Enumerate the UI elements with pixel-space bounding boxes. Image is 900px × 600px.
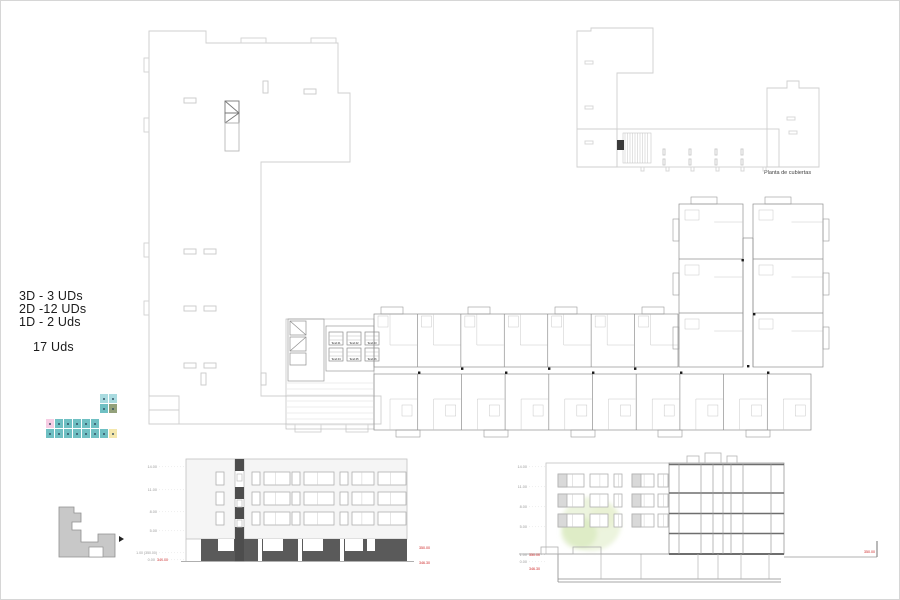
section-level-leaders <box>529 467 546 562</box>
window <box>216 492 224 505</box>
window <box>292 512 300 525</box>
window <box>292 492 300 505</box>
window <box>292 472 300 485</box>
unit-dot <box>94 423 96 425</box>
roof-drain-tick <box>741 167 744 171</box>
level-label: 5.00 <box>520 525 527 529</box>
tend-label: Tend.05 <box>349 357 359 361</box>
section-level-labels: 14.00 11.00 8.00 5.00 1.00 0.00 <box>517 465 527 564</box>
bathroom-hint <box>759 210 773 220</box>
vent-mark <box>204 306 216 311</box>
unit-dot <box>58 423 60 425</box>
roof-outline-bar <box>617 129 779 167</box>
vent-mark <box>184 98 196 103</box>
bathroom-hint <box>639 316 649 327</box>
key-plan-unit-teal <box>82 429 90 438</box>
unit-dot <box>112 408 114 410</box>
tend-area: Tend.01Tend.02Tend.03Tend.04Tend.05Tend.… <box>329 332 379 361</box>
tend-label: Tend.01 <box>331 341 341 345</box>
roof-drain-tick <box>716 167 719 171</box>
roof-column-mark <box>663 159 665 165</box>
bathroom-hint <box>795 405 805 416</box>
vent-mark <box>204 363 216 368</box>
roof-column-mark <box>715 149 717 155</box>
level-label: 14.00 <box>517 465 527 469</box>
unit-dot <box>76 423 78 425</box>
roof-mark <box>585 61 593 64</box>
bathroom-hint <box>577 405 587 416</box>
storefront-opening <box>263 539 283 551</box>
door-mark <box>634 368 636 370</box>
key-plan-unit-teal <box>55 419 63 428</box>
site-key-plan <box>59 507 124 557</box>
bathroom-hint <box>685 210 699 220</box>
level-label: 11.00 <box>518 485 527 489</box>
unit-dot <box>49 433 51 435</box>
wing-right-column <box>753 204 823 367</box>
key-plan-unit-yellow <box>109 429 117 438</box>
balcony <box>691 197 717 204</box>
unit-dot <box>85 423 87 425</box>
tower-dark-segment <box>235 527 244 539</box>
base-level-label: 1.00 (350.00) <box>136 551 157 555</box>
window-shutter <box>558 494 567 507</box>
elevation-level-labels: 14.00 11.00 8.00 5.00 1.00 (350.00) 0.00 <box>136 465 157 562</box>
section-low-wall <box>541 547 558 554</box>
balcony <box>555 307 577 314</box>
wing-left-column <box>679 204 743 367</box>
edge-tab <box>144 118 149 132</box>
tend-label: Tend.04 <box>331 357 341 361</box>
roof-column-mark <box>715 159 717 165</box>
bathroom-hint <box>533 405 543 416</box>
unit-dot <box>49 423 51 425</box>
key-plan-unit-teal <box>82 419 90 428</box>
storefront-opening <box>367 539 375 551</box>
bathroom-hint <box>595 316 605 327</box>
bathroom-hint <box>685 265 699 275</box>
elevation-level-leaders <box>159 467 184 560</box>
window <box>590 494 608 507</box>
window <box>378 472 406 485</box>
balcony <box>642 307 664 314</box>
legend-total-units: 17 Uds <box>33 341 86 354</box>
key-plan-unit-cyan <box>100 394 108 403</box>
door-mark <box>767 372 769 374</box>
tower-dark-segment <box>235 459 244 471</box>
tend-label: Tend.02 <box>349 341 359 345</box>
tower-base <box>235 539 244 561</box>
door-mark <box>548 368 550 370</box>
roof-mark <box>787 117 795 120</box>
roof-column-mark <box>663 149 665 155</box>
parking-floor-plan <box>144 31 381 432</box>
main-floor-plan: Tend.01Tend.02Tend.03Tend.04Tend.05Tend.… <box>286 197 829 437</box>
door-mark <box>418 372 420 374</box>
bathroom-hint <box>759 265 773 275</box>
tend-label: Tend.03 <box>367 341 377 345</box>
window <box>264 512 290 525</box>
window-shutter <box>558 514 567 527</box>
roof-outline-left-wing <box>577 28 653 167</box>
window-shutter <box>558 474 567 487</box>
storefront-opening <box>345 539 363 551</box>
window <box>658 514 668 527</box>
bathroom-hint <box>489 405 499 416</box>
bathroom-hint <box>465 316 475 327</box>
window <box>614 474 622 487</box>
level-label: 8.00 <box>150 510 157 514</box>
window <box>304 512 334 525</box>
vent-mark <box>184 363 196 368</box>
key-plan-unit-teal <box>91 429 99 438</box>
roof-column-mark <box>689 149 691 155</box>
balcony <box>765 197 791 204</box>
roof-appendage <box>727 456 737 463</box>
red-level-value: 350.00 <box>864 550 875 554</box>
balcony <box>468 307 490 314</box>
elevation-ground-floor <box>186 539 407 561</box>
site-key-shape <box>59 507 115 557</box>
key-plan-unit-teal <box>64 419 72 428</box>
unit-dot <box>67 433 69 435</box>
vent-mark <box>261 373 266 385</box>
bathroom-hint <box>421 316 431 327</box>
bathroom-hint <box>378 316 388 327</box>
unit-legend: 3D - 3 UDs 2D -12 UDs 1D - 2 Uds 17 Uds <box>19 290 86 354</box>
edge-tab <box>144 58 149 72</box>
vent-mark <box>263 81 268 93</box>
balcony <box>571 430 595 437</box>
bar-top-row <box>374 314 678 367</box>
window <box>590 474 608 487</box>
roof-core-mark <box>617 140 624 150</box>
door-mark <box>680 372 682 374</box>
bathroom-hint <box>685 319 699 329</box>
roof-drain-tick <box>641 167 644 171</box>
key-plan-unit-teal <box>100 429 108 438</box>
window <box>658 494 668 507</box>
pillar-gap <box>258 539 262 561</box>
roof-outline-right-block <box>767 81 819 167</box>
roof-appendage <box>687 456 699 463</box>
tower-dark-segment <box>235 487 244 499</box>
roof-light <box>311 38 336 43</box>
window <box>304 492 334 505</box>
roof-light <box>241 38 266 43</box>
site-key-courtyard-cut <box>89 547 103 557</box>
red-level-value: 346.30 <box>419 561 430 565</box>
zero-level-label: 0.00 <box>148 558 155 562</box>
roof-mark <box>585 141 593 144</box>
tend-label: Tend.06 <box>367 357 377 361</box>
level-label: 14.00 <box>147 465 157 469</box>
door-mark <box>505 372 507 374</box>
architectural-drawings: Planta de cubiertas Tend.01Tend.02Tend.0… <box>1 1 900 600</box>
key-plan-unit-teal <box>100 404 108 413</box>
key-plan-unit-cyan <box>109 394 117 403</box>
window <box>252 472 260 485</box>
unit-dot <box>85 433 87 435</box>
window <box>216 472 224 485</box>
door-mark <box>592 372 594 374</box>
unit-dot <box>112 398 114 400</box>
bathroom-hint <box>621 405 631 416</box>
bathroom-hint <box>664 405 674 416</box>
vent-mark <box>304 89 316 94</box>
window-shutter <box>632 494 641 507</box>
roof-drain-tick <box>691 167 694 171</box>
level-label: 11.00 <box>148 488 157 492</box>
bathroom-hint <box>752 405 762 416</box>
door-mark <box>461 368 463 370</box>
key-plan-unit-teal <box>55 429 63 438</box>
roof-mark <box>789 131 797 134</box>
window <box>352 472 374 485</box>
unit-dot <box>112 433 114 435</box>
door-mark <box>742 259 744 261</box>
window-shutter <box>632 514 641 527</box>
window <box>340 512 348 525</box>
window <box>378 512 406 525</box>
roof-mark <box>585 106 593 109</box>
door-mark <box>747 365 749 367</box>
building-elevation: 14.00 11.00 8.00 5.00 1.00 (350.00) 0.00… <box>136 459 430 565</box>
window <box>264 492 290 505</box>
unit-dot <box>103 408 105 410</box>
window <box>252 492 260 505</box>
key-plan-unit-teal <box>91 419 99 428</box>
key-plan-unit-teal <box>73 419 81 428</box>
window-shutter <box>632 474 641 487</box>
north-arrow-icon <box>119 536 124 542</box>
key-plan-unit-olive <box>109 404 117 413</box>
balcony <box>484 430 508 437</box>
red-level-value: 346.30 <box>529 567 540 571</box>
window <box>340 472 348 485</box>
storefront-opening <box>218 539 234 551</box>
vent-mark <box>201 373 206 385</box>
roof-appendage <box>705 453 721 463</box>
window <box>658 474 668 487</box>
level-label: 8.00 <box>520 505 527 509</box>
vent-mark <box>184 249 196 254</box>
window <box>264 472 290 485</box>
window <box>352 492 374 505</box>
unit-dot <box>58 433 60 435</box>
tower-dark-segment <box>235 507 244 519</box>
bathroom-hint <box>759 319 773 329</box>
edge-tab <box>144 243 149 257</box>
key-plan-unit-teal <box>73 429 81 438</box>
balcony <box>658 430 682 437</box>
corridor-door-marks <box>418 259 769 374</box>
balcony <box>396 430 420 437</box>
pillar-gap <box>298 539 302 561</box>
balcony <box>746 430 770 437</box>
vent-mark <box>204 249 216 254</box>
key-plan-unit-teal <box>46 429 54 438</box>
storefront-opening <box>303 539 323 551</box>
window <box>340 492 348 505</box>
balcony <box>823 273 829 295</box>
level-label: 0.00 <box>520 560 527 564</box>
window <box>378 492 406 505</box>
unit-dot <box>67 423 69 425</box>
window <box>352 512 374 525</box>
red-level-value: 350.00 <box>529 553 540 557</box>
bathroom-hint <box>552 316 562 327</box>
vent-mark <box>184 306 196 311</box>
balcony <box>823 327 829 349</box>
parking-stair-core <box>225 101 239 151</box>
bathroom-hint <box>508 316 518 327</box>
balcony <box>823 219 829 241</box>
window <box>304 472 334 485</box>
red-level-value: 350.00 <box>419 546 430 550</box>
unit-mix-key-plan <box>45 394 123 440</box>
unit-dot <box>103 433 105 435</box>
door-mark <box>753 313 755 315</box>
roof-drain-tick <box>666 167 669 171</box>
key-plan-unit-teal <box>64 429 72 438</box>
roof-plan-caption: Planta de cubiertas <box>764 170 811 176</box>
bathroom-hint <box>402 405 412 416</box>
unit-dot <box>76 433 78 435</box>
window <box>216 512 224 525</box>
drawing-sheet: Planta de cubiertas Tend.01Tend.02Tend.0… <box>0 0 900 600</box>
level-label: 1.00 <box>520 553 527 557</box>
window <box>252 512 260 525</box>
pillar-gap <box>340 539 344 561</box>
balcony <box>673 273 679 295</box>
roof-column-mark <box>689 159 691 165</box>
window <box>614 494 622 507</box>
balcony <box>673 219 679 241</box>
key-plan-unit-pink <box>46 419 54 428</box>
unit-dot <box>103 398 105 400</box>
terrace-deck-lines <box>287 383 373 425</box>
apartment-units <box>378 197 829 437</box>
bathroom-hint <box>708 405 718 416</box>
bathroom-hint <box>446 405 456 416</box>
window <box>614 514 622 527</box>
unit-dot <box>94 433 96 435</box>
balcony <box>381 307 403 314</box>
level-label: 5.00 <box>150 529 157 533</box>
edge-tab <box>144 301 149 315</box>
window <box>590 514 608 527</box>
roof-column-mark <box>741 149 743 155</box>
roof-column-mark <box>741 159 743 165</box>
building-section: 14.00 11.00 8.00 5.00 1.00 0.00 350.00 3… <box>517 453 877 582</box>
legend-line-1d: 1D - 2 Uds <box>19 316 86 329</box>
roof-stair-hatch <box>623 133 651 163</box>
roof-plan: Planta de cubiertas <box>577 28 819 176</box>
